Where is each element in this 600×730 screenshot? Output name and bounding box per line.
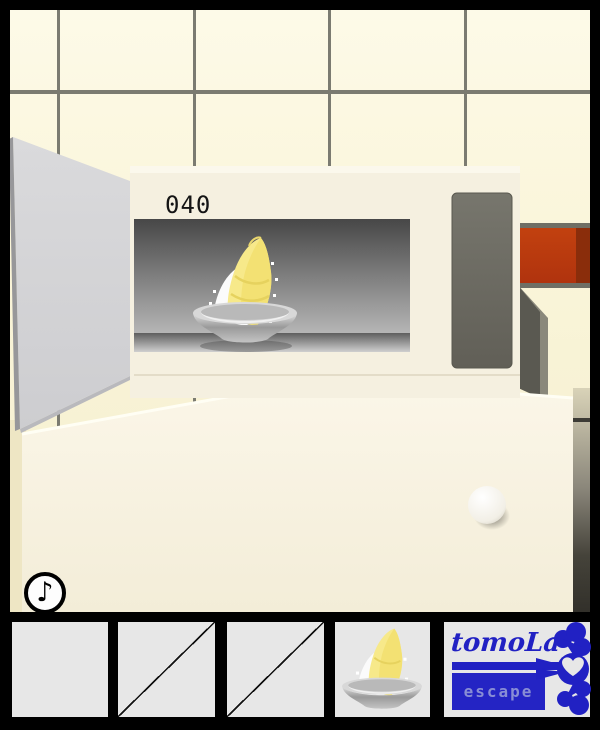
microwave-control-panel[interactable] — [452, 193, 512, 368]
counter-knob[interactable] — [468, 486, 506, 524]
microwave[interactable]: 040 — [130, 166, 520, 398]
game-stage: 040 ♪ — [0, 0, 600, 730]
ice-cream-item-icon — [336, 624, 428, 716]
music-note-icon: ♪ — [36, 577, 53, 608]
microwave-display: 040 — [165, 191, 211, 219]
microwave-door[interactable] — [10, 137, 130, 433]
kitchen-scene: 040 ♪ — [10, 10, 590, 612]
inventory-slot-4-ice-cream[interactable]: 6 — [335, 622, 430, 717]
logo-subtitle: escape — [464, 682, 534, 701]
microwave-shadow — [516, 283, 548, 399]
logo-subtitle-box: escape — [452, 673, 545, 710]
music-toggle-button[interactable]: ♪ — [24, 572, 66, 612]
inventory-slot-3-crossed[interactable] — [227, 622, 324, 717]
wall-right-strip — [573, 388, 590, 612]
inventory-slot-1[interactable] — [12, 622, 108, 717]
scene-canvas: 040 — [10, 10, 590, 612]
inventory-slot-2-crossed[interactable] — [118, 622, 215, 717]
counter[interactable] — [22, 388, 573, 612]
key-icon — [536, 622, 592, 717]
